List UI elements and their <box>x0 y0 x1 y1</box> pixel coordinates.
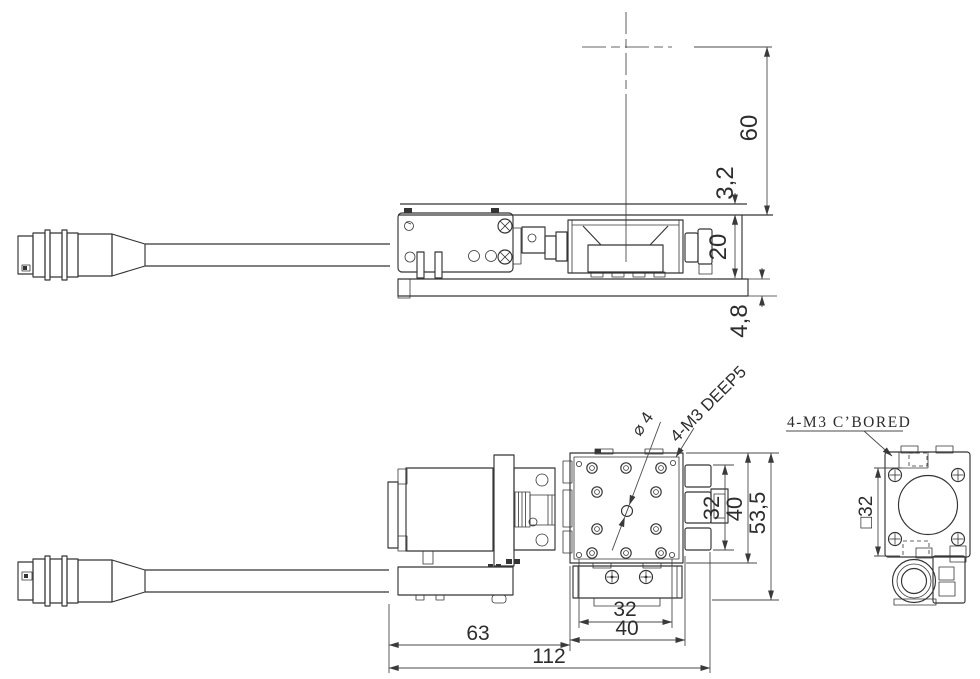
phillips-screw-icon <box>606 571 619 584</box>
callout-m3-deep5: 4-M3 DEEP5 <box>666 362 750 446</box>
dim-square-32: □32 <box>856 496 877 529</box>
dim-63: 63 <box>466 622 489 645</box>
m3-hole <box>669 552 674 557</box>
phillips-screw-icon <box>889 469 902 482</box>
motor-housing-side <box>398 213 513 278</box>
m3-hole <box>576 461 581 466</box>
cable-connector-side <box>18 230 390 280</box>
dim-40-right: 40 <box>722 497 747 521</box>
callout-phi4: ⌀ 4 <box>628 408 658 439</box>
stage-mounting-holes <box>587 463 666 558</box>
stage-table-side <box>568 220 683 277</box>
coupling-side <box>513 227 567 264</box>
phillips-screw-icon <box>498 250 512 264</box>
phillips-screw-icon <box>498 219 512 233</box>
cable-connector-plan <box>18 556 389 606</box>
motor-housing-plan <box>388 468 493 564</box>
connector-end-view <box>893 546 967 605</box>
side-view <box>18 12 777 298</box>
plan-view <box>18 449 728 606</box>
center-mark <box>582 12 672 262</box>
dim-53-5: 53,5 <box>745 492 770 535</box>
phillips-screw-icon <box>889 533 902 546</box>
dim-3-2: 3,2 <box>712 166 739 199</box>
end-view: 4-M3 C’BORED <box>786 414 970 605</box>
counterbore-top <box>899 452 928 468</box>
drawing-svg: 60 3,2 20 4,8 <box>0 0 980 679</box>
stage-plate-plan <box>563 449 683 568</box>
bore-circle <box>899 476 958 535</box>
callout-m3-cbored: 4-M3 C’BORED <box>787 414 911 431</box>
phillips-screw-icon <box>952 533 965 546</box>
m3-hole <box>670 460 675 465</box>
dim-4-8: 4,8 <box>726 304 753 337</box>
flange-and-rail-plan <box>494 455 555 566</box>
dim-112: 112 <box>532 645 565 668</box>
dim-40-bottom: 40 <box>615 617 638 640</box>
counterbore-bottom <box>903 541 932 558</box>
dim-32-right: 32 <box>699 496 724 520</box>
dim-20: 20 <box>705 234 732 261</box>
plan-view-dimensions-bottom: 32 40 63 112 <box>389 552 710 673</box>
base-plate-side <box>398 279 777 298</box>
motor-base-plan <box>398 564 513 603</box>
plan-view-dimensions-right: 32 40 53,5 <box>686 453 779 600</box>
technical-drawing-canvas: 60 3,2 20 4,8 <box>0 0 980 679</box>
center-hole <box>622 506 633 517</box>
side-view-dimensions: 60 3,2 20 4,8 <box>694 47 772 338</box>
phillips-screw-icon <box>640 571 653 584</box>
phillips-screw-icon <box>952 469 965 482</box>
m3-hole <box>576 552 581 557</box>
dim-60: 60 <box>736 115 763 142</box>
